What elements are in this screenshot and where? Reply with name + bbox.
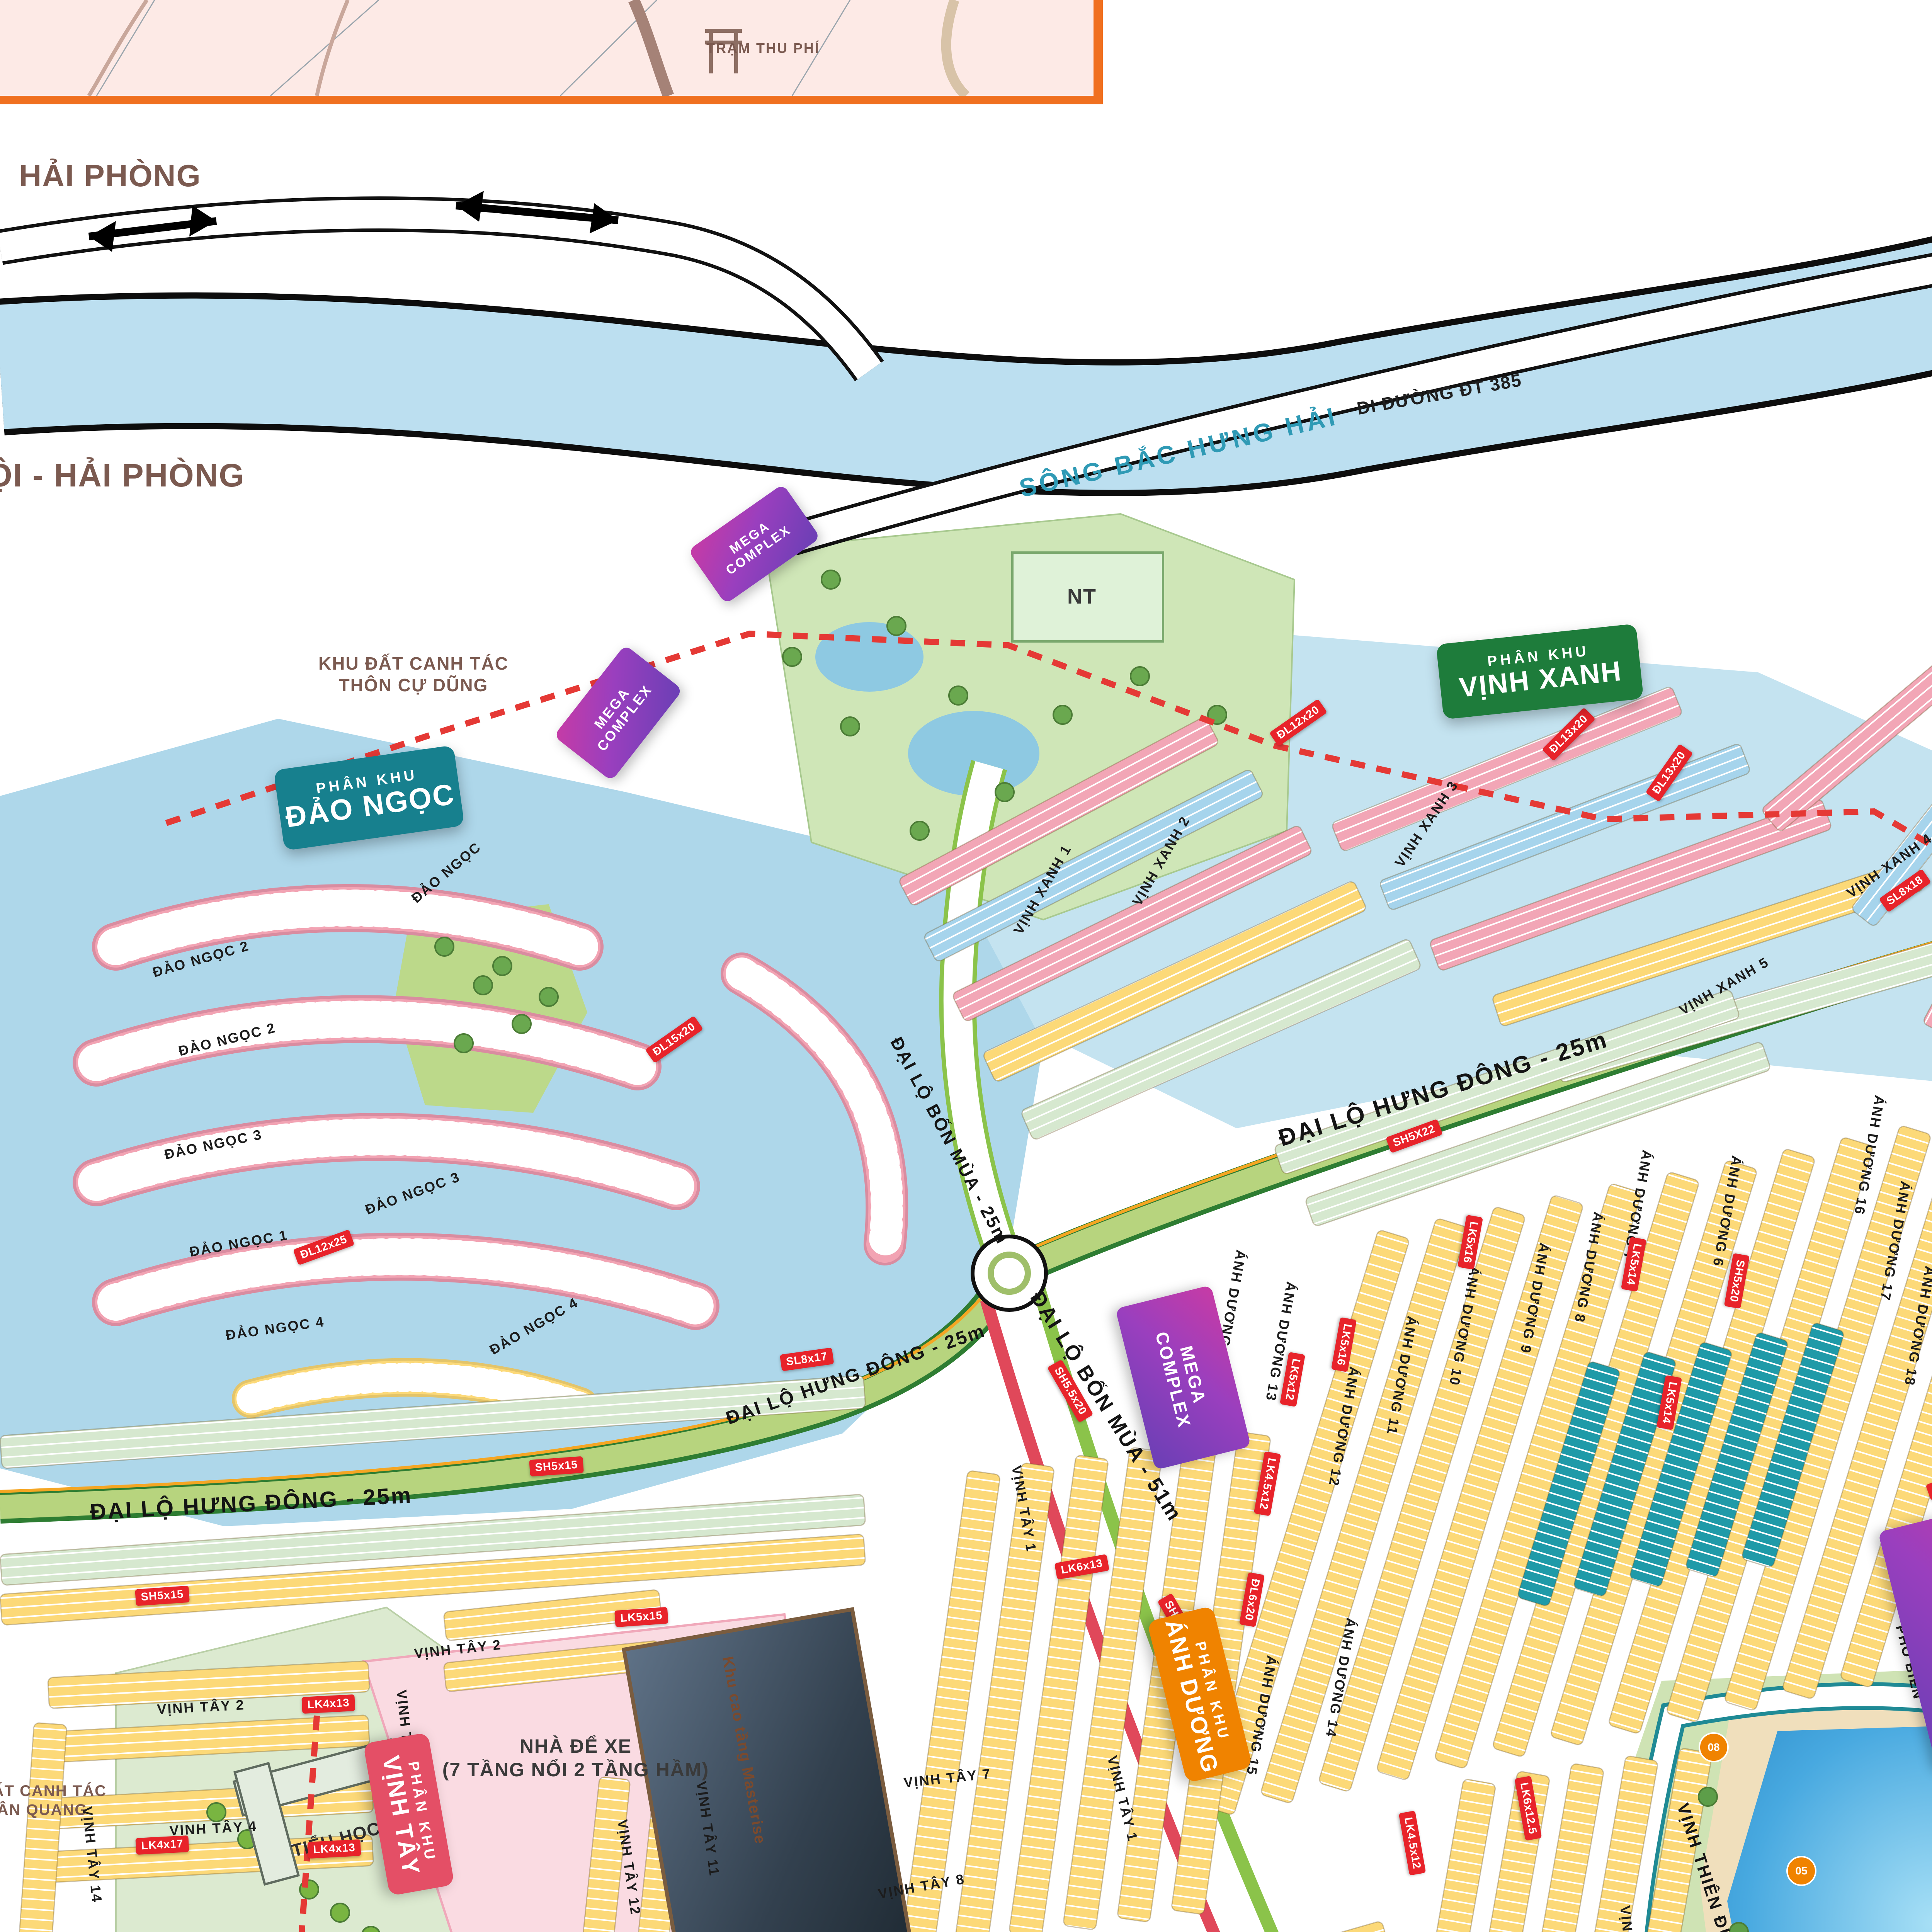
nt-field	[1012, 553, 1163, 641]
tree-icon	[995, 783, 1014, 801]
map-canvas	[0, 0, 1932, 1932]
plot-row	[10, 1723, 67, 1932]
plot-type-chip: LK4x13	[307, 1839, 361, 1859]
plot-row	[1371, 1779, 1496, 1932]
tree-icon	[207, 1803, 226, 1821]
vx-pond-1	[815, 622, 923, 692]
plot-type-chip: LK4x13	[301, 1694, 355, 1714]
tree-icon	[493, 957, 512, 975]
tree-icon	[1699, 1787, 1717, 1806]
tree-icon	[887, 617, 906, 635]
tree-icon	[435, 937, 454, 956]
tree-icon	[454, 1034, 473, 1053]
inset-canvas	[0, 0, 1094, 96]
tree-icon	[1131, 667, 1149, 685]
location-inset-map	[0, 0, 1103, 104]
toll-gate-icon	[705, 31, 742, 73]
masterise-photo-1	[624, 1609, 914, 1932]
tree-icon	[841, 717, 859, 736]
tree-icon	[949, 686, 968, 705]
tree-icon	[910, 821, 929, 840]
roundabout-north	[973, 1236, 1046, 1310]
tree-icon	[539, 988, 558, 1006]
masterplan-map: HẢI PHÒNGỘI - HẢI PHÒNGĐI QUỐC LỘ 5AĐI Q…	[0, 0, 1932, 1932]
tree-icon	[821, 570, 840, 589]
tree-icon	[331, 1903, 349, 1922]
tree-icon	[512, 1015, 531, 1033]
tree-icon	[1053, 706, 1072, 724]
beach-number-dot: 08	[1699, 1732, 1729, 1762]
beach-number-dot: 05	[1786, 1856, 1816, 1886]
tree-icon	[474, 976, 492, 995]
plot-type-chip: LK4x17	[135, 1835, 189, 1855]
tree-icon	[783, 648, 801, 666]
